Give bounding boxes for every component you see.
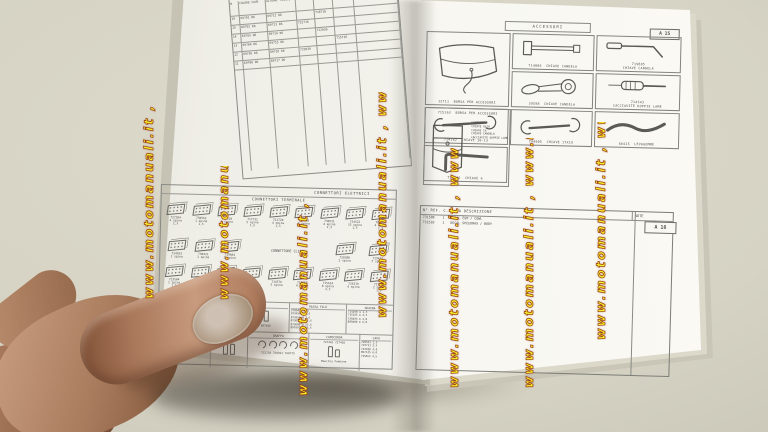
connector-item: 728380 2 spina <box>332 241 358 268</box>
connector-item: 721720 4 spina 1,5 <box>265 204 291 241</box>
connector-item: 714576 5 spina <box>264 266 290 303</box>
connector-icon <box>168 240 187 252</box>
connector-icon <box>344 270 363 282</box>
accessory-cell: 714806 CHIAVE CANDELA <box>512 33 595 71</box>
watermark-text: www.motomanuali.it , www.motomanuali.it <box>295 196 310 396</box>
connector-item: 717731 5 spina 1,5 <box>240 203 266 240</box>
pouch-contents-list: CONTIENE:CHIAVE 8X10CHIAVE 16CHIAVE CAND… <box>470 115 509 185</box>
connector-icon <box>320 207 339 219</box>
watermark-text: www.motomanuali.it , www.motomanuali.it <box>593 122 608 340</box>
connector-item: 724933 1 spina <box>164 237 190 264</box>
tire-lever-drawing <box>600 113 674 143</box>
accessory-cell-pouch: 715163 BORSA PER ACCESSORI CONTIENE:CHIA… <box>423 107 511 187</box>
connector-row: 727204 4 spina 2,3 730562 1 spina 1,5 72… <box>161 201 396 243</box>
connector-icon <box>269 206 288 218</box>
list-line: 725364 4,5 <box>361 354 391 358</box>
table-divider <box>630 212 636 375</box>
connector-item: 724522 13 spina 1,5 <box>342 205 368 242</box>
screwdriver-drawing <box>601 75 674 100</box>
connector-item: 727204 4 spina 2,3 <box>163 201 189 238</box>
connector-icon <box>166 204 185 216</box>
watermark-text: www.motomanuali.it , www.motomanuali.it <box>141 103 156 299</box>
lug-icon <box>335 349 340 357</box>
watermark-text: www.motomanuali.it , www.motomanuali.it <box>374 92 389 318</box>
accessories-title: ACCESSORI <box>505 21 591 33</box>
cavo-box: CAVO 720541 1,5722711 2,5724930 4,089712… <box>359 334 392 372</box>
accessory-cell: 714343CACCIAVITE DOPPIE LAME <box>595 73 681 111</box>
connector-item: 730531 4 spina 2,3 <box>316 205 342 242</box>
connector-icon <box>335 244 354 256</box>
contents-line: CACCIAVITE DOPPIE LAME <box>471 136 508 141</box>
connector-icon <box>192 204 211 216</box>
connector-icon <box>194 240 213 252</box>
double-open-end-wrench-drawing <box>516 111 587 141</box>
connector-item: 730562 1 spina 1,5 <box>188 202 214 239</box>
list-line: 885000 m 6,0 <box>348 321 392 325</box>
accessory-cell: 719805CHIAVE CANDELA <box>596 35 682 73</box>
socket-wrench-drawing <box>517 73 588 103</box>
watermark-text: www.motomanuali.it , www.motomanuali.it <box>521 138 536 388</box>
connector-item: 726319 4 spina <box>341 267 367 304</box>
connector-icon <box>267 268 286 280</box>
accessory-cell-bag: 12711 BORSA PER ACCESSORI <box>425 31 511 107</box>
page-ref-badge: A 16 <box>644 221 676 234</box>
connector-icon <box>243 205 262 217</box>
photo-of-open-parts-manual: COLORAZIONE CAVI NCOLORE CAVOALTERN. COL… <box>0 0 768 432</box>
capocorda-box: CAPOCORDA 727403 727402 Maschio Femmina <box>309 333 361 371</box>
tool-bag-drawing <box>431 33 505 101</box>
connector-item: 730411 1 spina <box>191 238 217 265</box>
watermark-text: www.motomanuali.it , www.motomanuali.it <box>446 148 461 388</box>
spark-plug-wrench-drawing <box>518 35 589 65</box>
watermark-text: www.motomanuali.it , www.motomanuali.it <box>216 166 231 300</box>
accessories-table: ACCESSORI A 15 12711 BORSA PER ACCESSORI <box>423 19 682 191</box>
connector-icon <box>319 269 338 281</box>
connector-icon <box>165 266 184 278</box>
connector-icon <box>346 208 365 220</box>
accessory-cell: 39598 CHIAVE CANDELA <box>511 71 594 109</box>
lug-icon <box>328 346 333 357</box>
connector-item: 715614 8 spina 2,3 <box>315 267 341 304</box>
plug-wrench-rod-drawing <box>602 37 675 62</box>
